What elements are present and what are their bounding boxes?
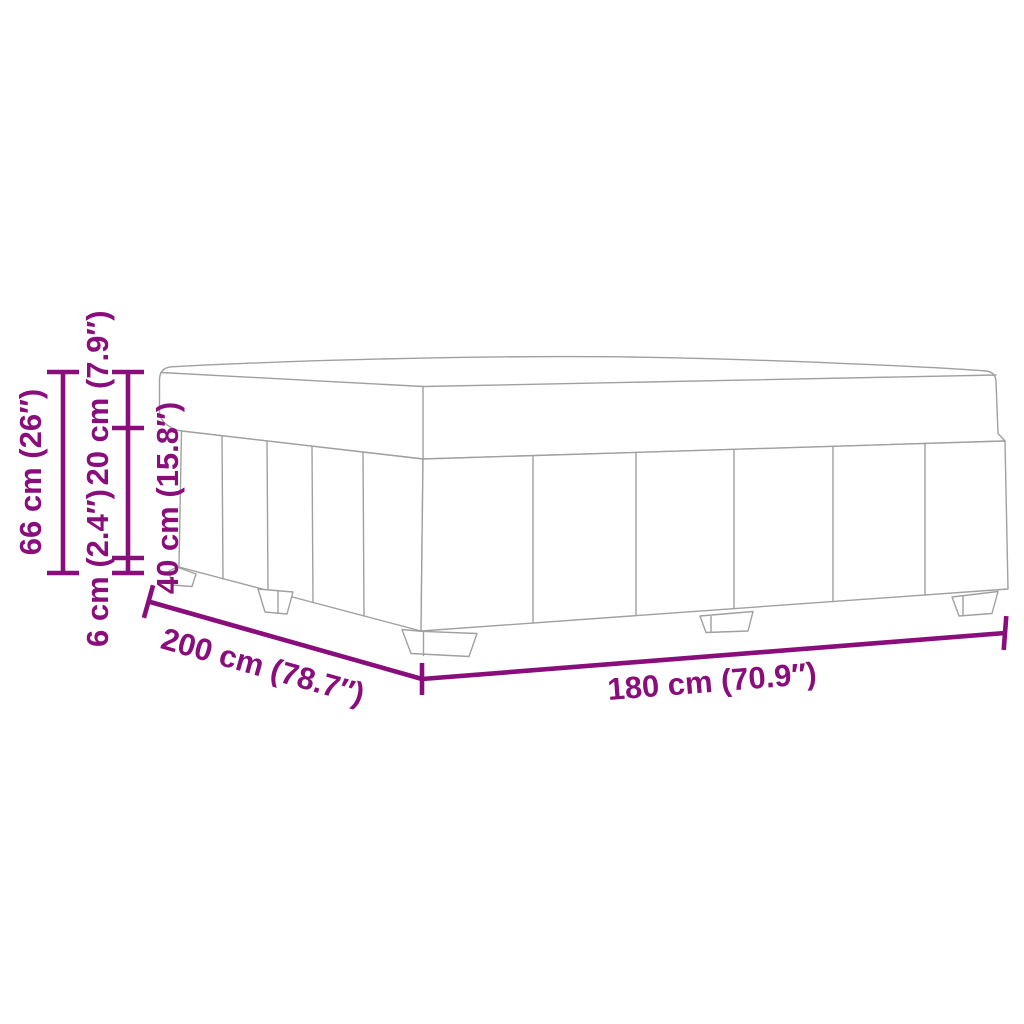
base-left-face — [179, 431, 423, 631]
dimension-label-leg-height: 6 cm (2.4″) — [80, 489, 115, 647]
dimension-label-total-height: 66 cm (26″) — [13, 389, 48, 556]
foot-front-middle — [700, 612, 753, 633]
dimension-tick — [1004, 616, 1007, 650]
foot-near-corner — [402, 630, 477, 657]
dimension-total-height: 66 cm (26″) — [13, 372, 79, 573]
diagram-canvas: 66 cm (26″) 20 cm (7.9″) 6 cm (2.4″) 40 … — [0, 0, 1024, 1024]
dimension-stacked-heights: 20 cm (7.9″) 6 cm (2.4″) 40 cm (15.8″) — [80, 310, 185, 646]
dimension-diagram: 66 cm (26″) 20 cm (7.9″) 6 cm (2.4″) 40 … — [0, 0, 1024, 1024]
foot-left-middle — [258, 589, 293, 614]
seam-line — [267, 441, 268, 591]
seam-line — [222, 436, 223, 579]
foot-right-corner — [952, 592, 998, 617]
seam-line — [363, 452, 364, 616]
seam-line — [312, 446, 313, 602]
dimension-label-base-height: 40 cm (15.8″) — [150, 402, 185, 594]
base-front-face — [421, 441, 1008, 631]
furniture-drawing — [160, 357, 1009, 657]
dimension-label-top-height: 20 cm (7.9″) — [80, 310, 115, 485]
